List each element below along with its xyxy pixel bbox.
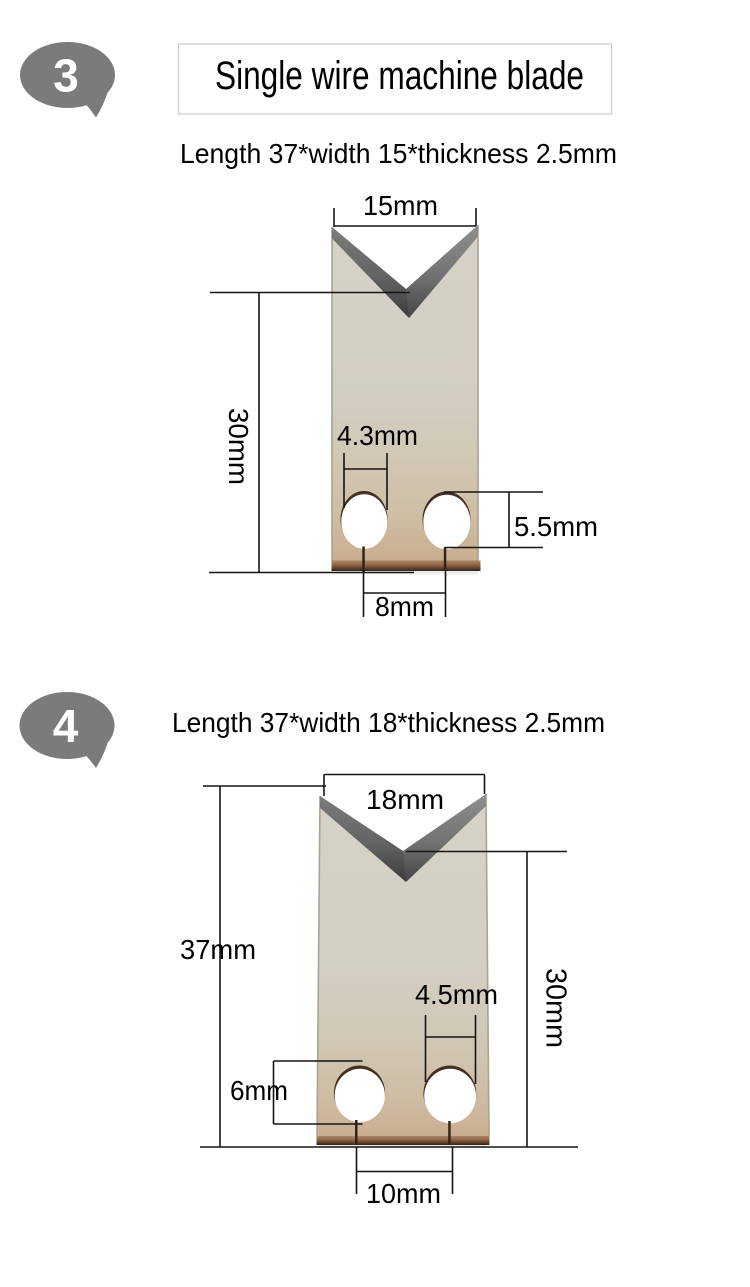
- svg-text:4: 4: [53, 700, 79, 752]
- svg-text:10mm: 10mm: [366, 1178, 441, 1209]
- svg-text:Single wire machine blade: Single wire machine blade: [215, 54, 584, 98]
- svg-text:Length 37*width 15*thickness 2: Length 37*width 15*thickness 2.5mm: [180, 138, 617, 169]
- svg-text:4.3mm: 4.3mm: [337, 420, 418, 451]
- svg-text:6mm: 6mm: [230, 1075, 288, 1106]
- svg-text:18mm: 18mm: [366, 784, 444, 815]
- svg-text:Length 37*width 18*thickness 2: Length 37*width 18*thickness 2.5mm: [172, 707, 605, 738]
- svg-text:30mm: 30mm: [540, 968, 572, 1048]
- svg-text:5.5mm: 5.5mm: [514, 511, 598, 542]
- svg-text:8mm: 8mm: [375, 591, 434, 622]
- svg-text:30mm: 30mm: [223, 408, 254, 485]
- svg-text:37mm: 37mm: [180, 934, 256, 965]
- svg-text:15mm: 15mm: [363, 190, 438, 221]
- svg-text:4.5mm: 4.5mm: [415, 979, 498, 1010]
- svg-text:3: 3: [53, 50, 79, 102]
